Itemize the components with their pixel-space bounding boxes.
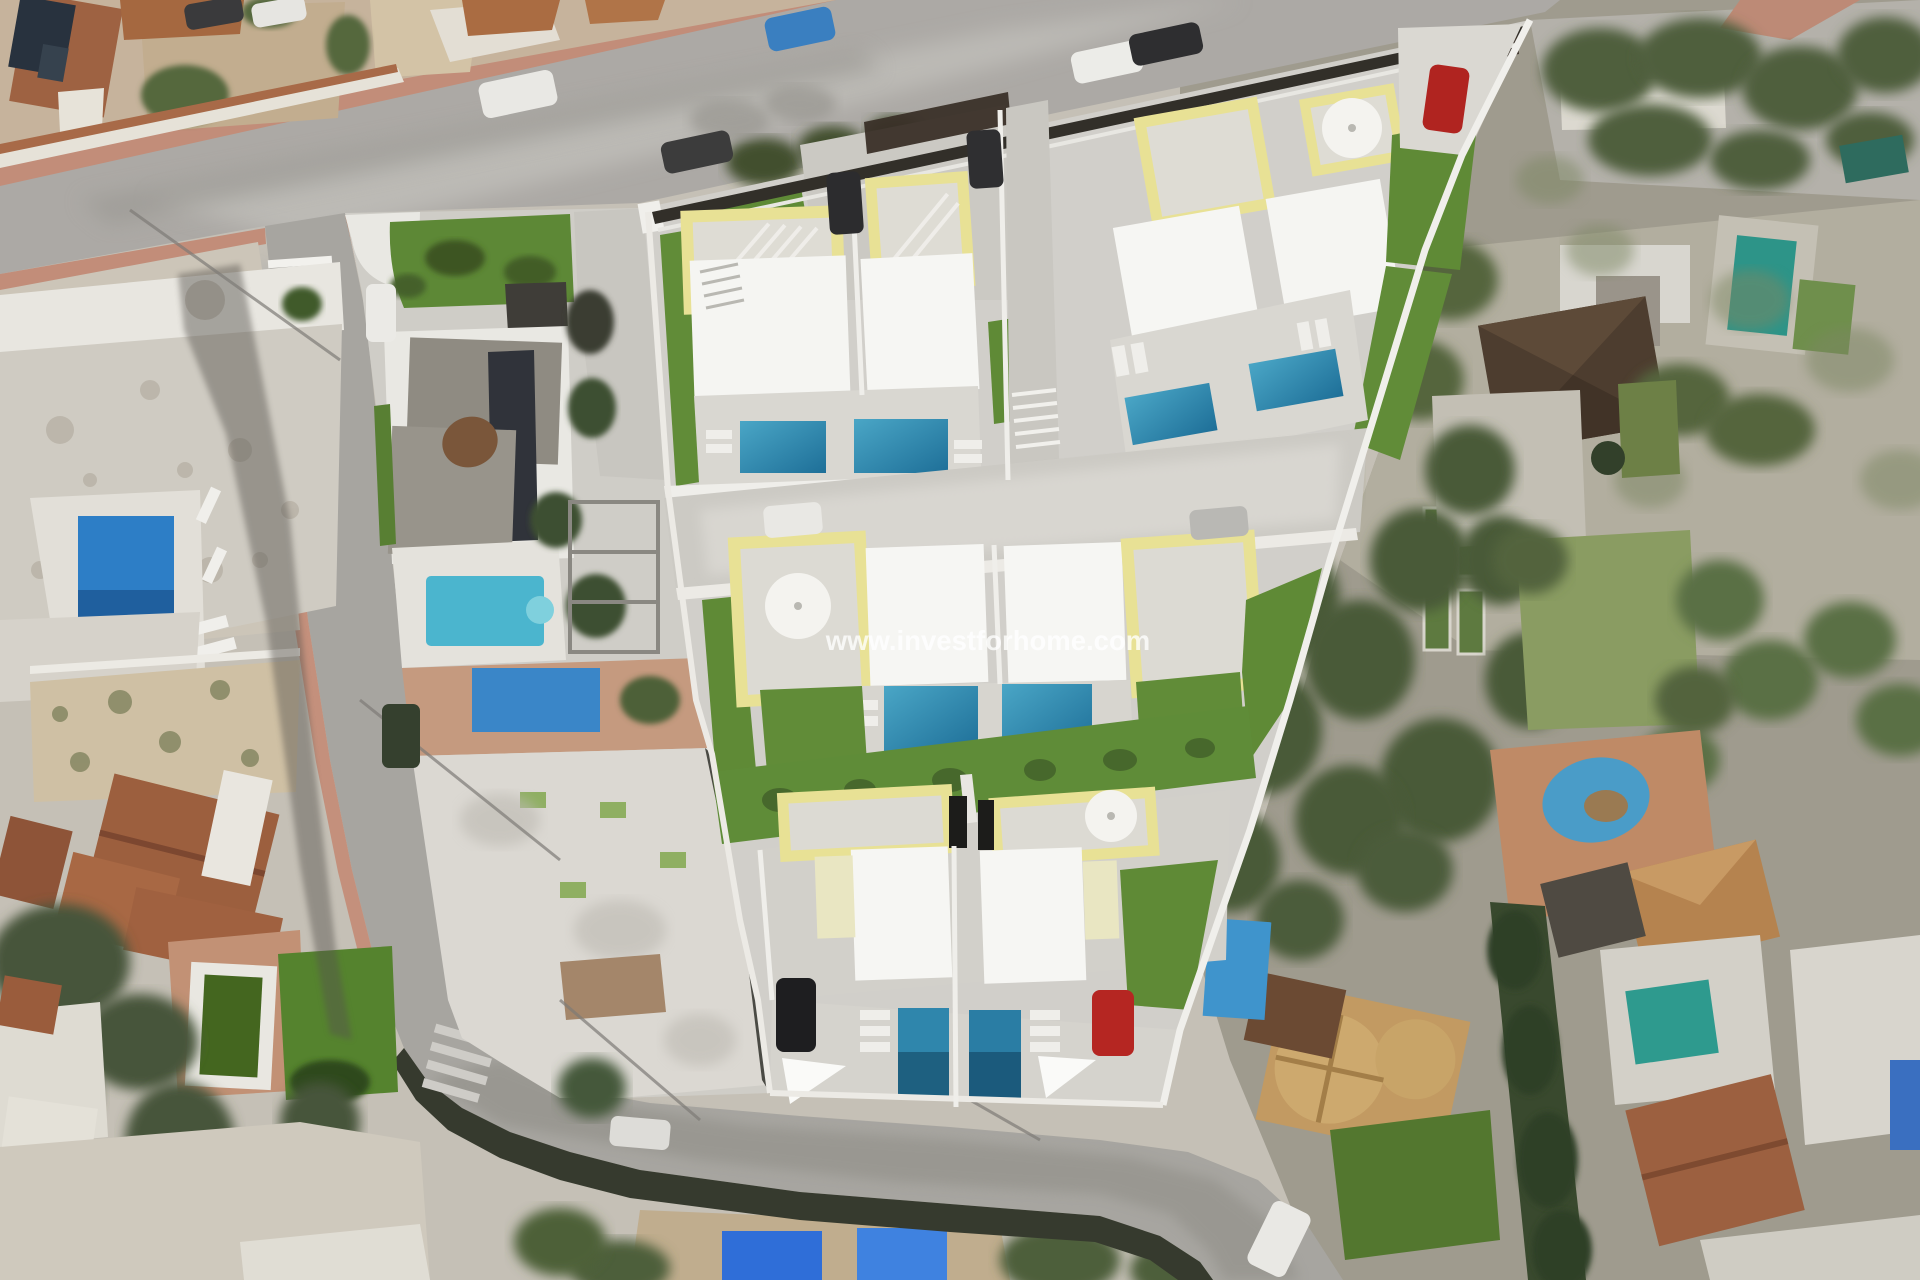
svg-text:www.investforhome.com: www.investforhome.com <box>825 625 1150 656</box>
